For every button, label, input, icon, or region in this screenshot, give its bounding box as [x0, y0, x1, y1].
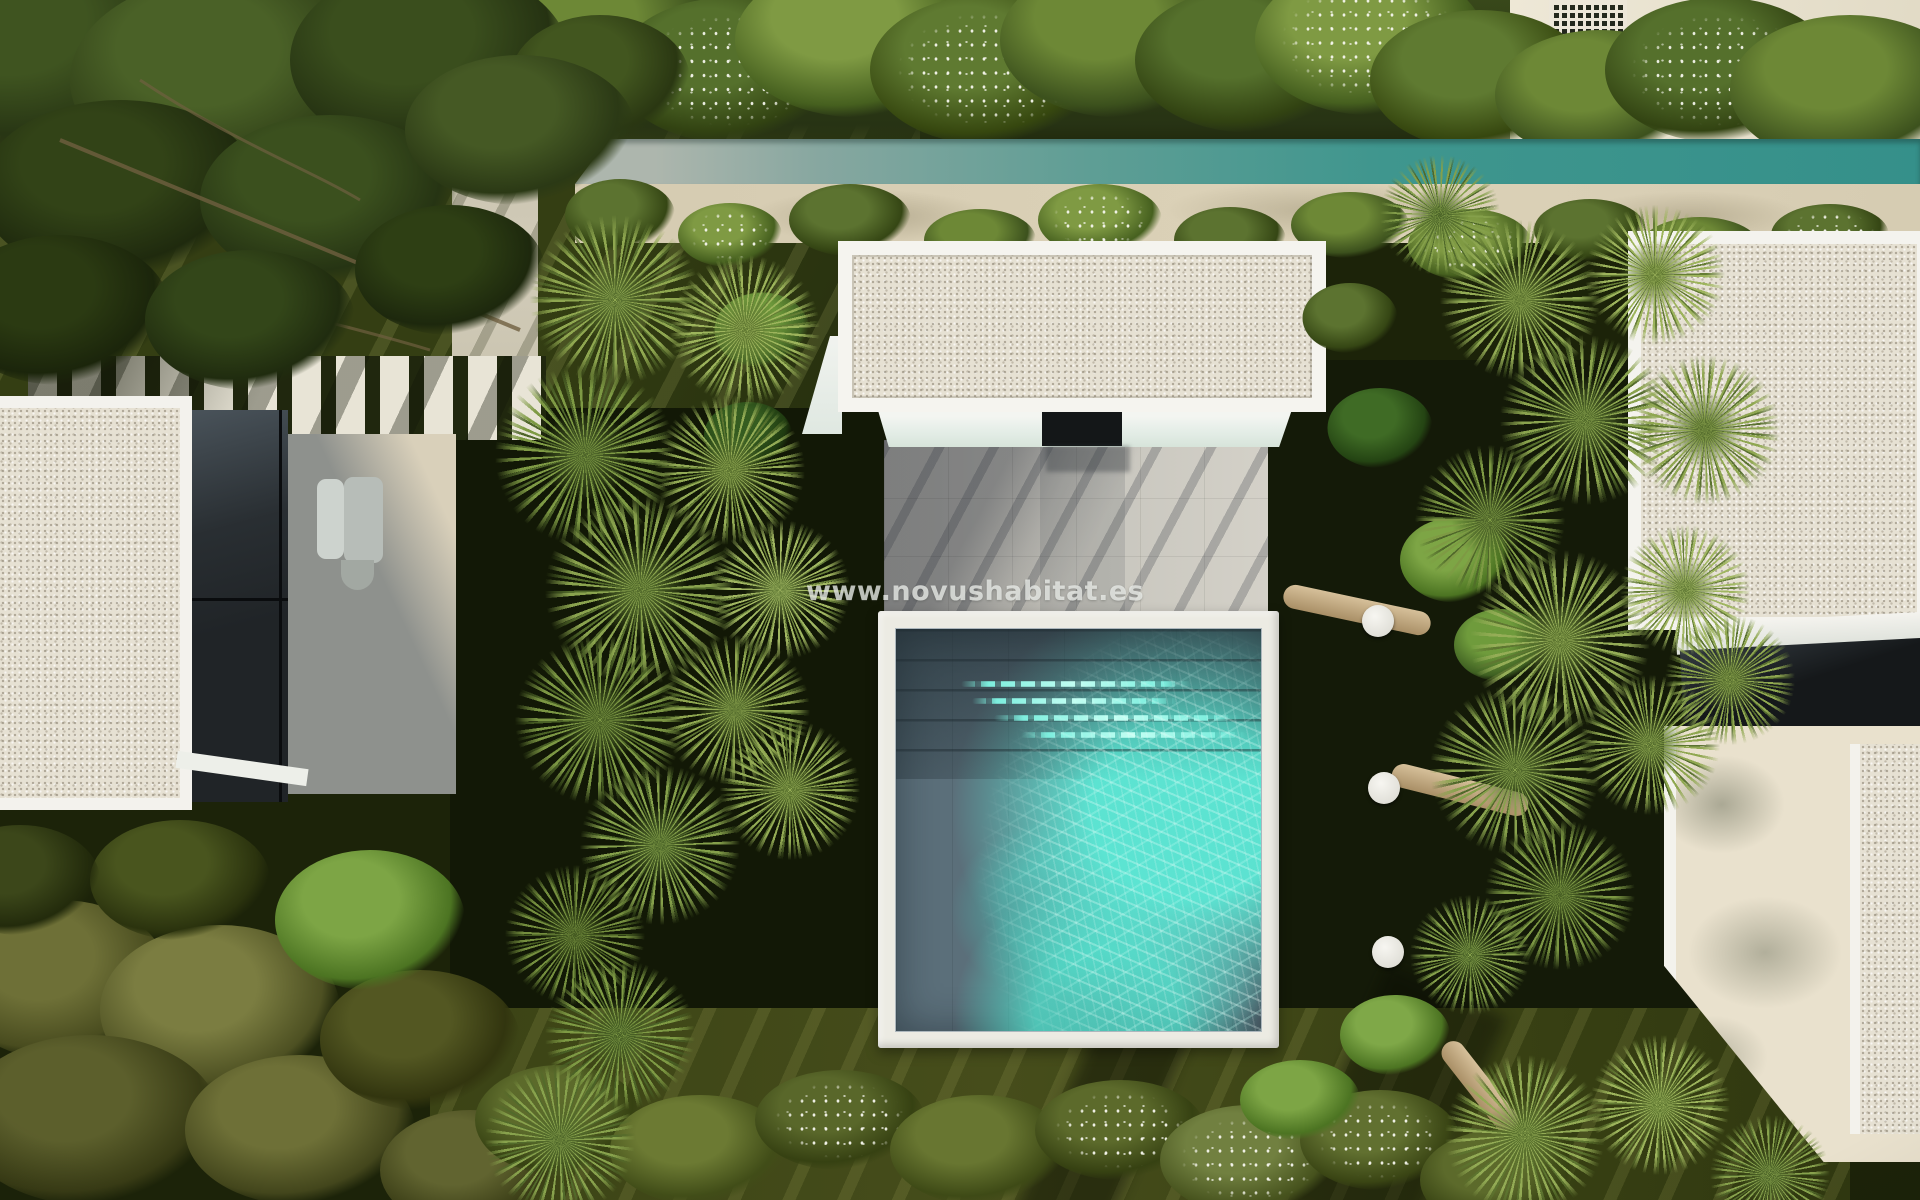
- palm-tree: [1590, 1035, 1730, 1175]
- bush: [1303, 283, 1398, 353]
- bush: [90, 820, 270, 940]
- tree-canopy: [355, 205, 545, 335]
- bush: [275, 850, 465, 990]
- palm-tree: [1410, 895, 1530, 1015]
- tree-canopy: [145, 250, 355, 390]
- side-table: [1362, 605, 1394, 637]
- watermark: www.novushabitat.es: [806, 576, 1144, 607]
- palm-tree: [1585, 205, 1725, 345]
- palm-tree: [1580, 675, 1720, 815]
- entrance-gap-shadow: [1046, 446, 1130, 472]
- bush: [1240, 1060, 1360, 1140]
- palm-tree: [720, 720, 860, 860]
- pool-water: [895, 628, 1262, 1032]
- bush: [1328, 388, 1433, 468]
- boundary-wall-teal: [575, 139, 1920, 184]
- side-table: [1372, 936, 1404, 968]
- outdoor-armchair-back: [317, 479, 344, 559]
- left-annex-gravel-roof: [0, 396, 192, 810]
- side-table: [1368, 772, 1400, 804]
- pool-canopy-gravel-roof: [838, 241, 1326, 412]
- pool-coping: [878, 611, 1279, 1048]
- outdoor-armchair-seat: [344, 477, 383, 563]
- left-annex-glazing: [192, 410, 288, 802]
- palm-tree: [1630, 355, 1780, 505]
- glazing-mullion: [192, 598, 288, 601]
- pool-caustics: [896, 629, 1261, 1031]
- right-gravel-border: [1850, 744, 1920, 1134]
- glazing-mullion: [279, 410, 282, 802]
- bush: [1340, 995, 1450, 1075]
- aerial-villa-render: www.novushabitat.es: [0, 0, 1920, 1200]
